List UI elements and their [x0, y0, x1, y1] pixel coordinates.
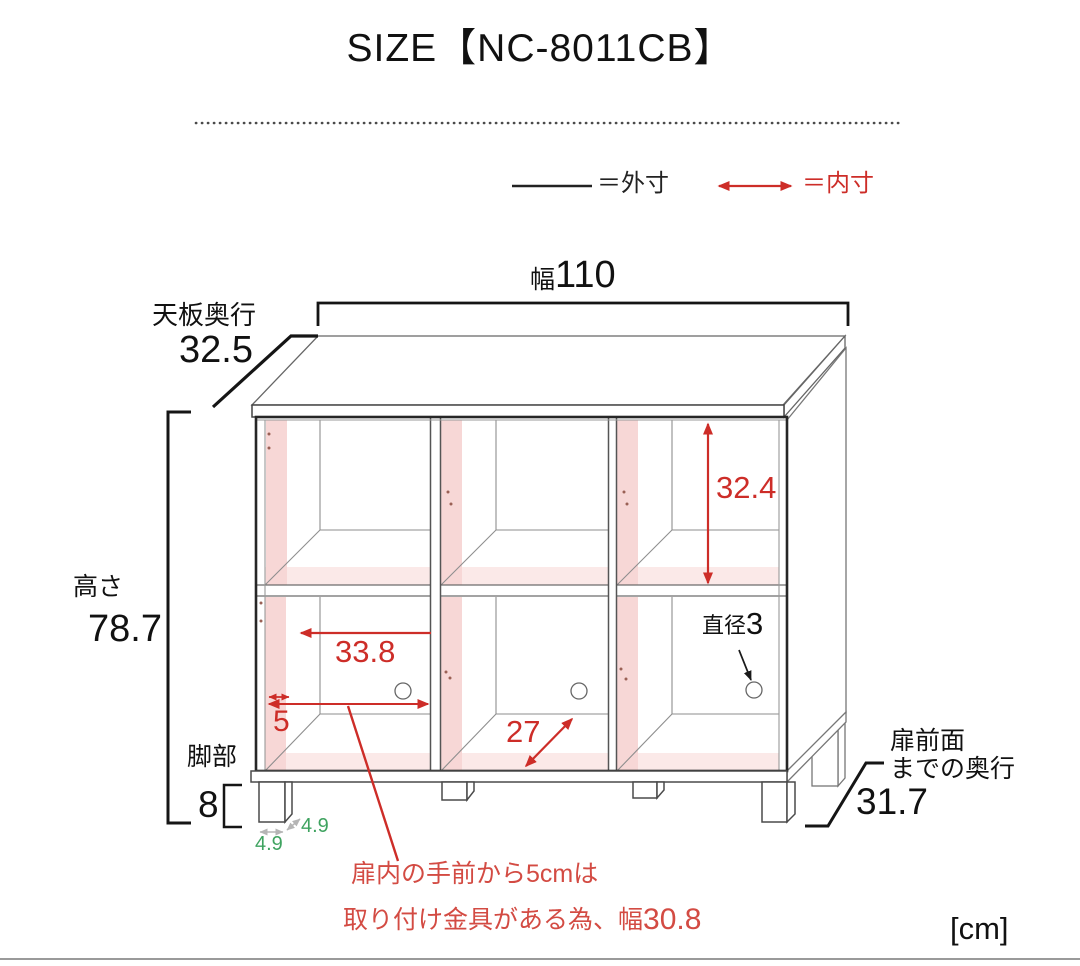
width-label: 幅 — [530, 267, 555, 296]
width-dimension: 幅 110 — [530, 256, 616, 296]
size-diagram-page: SIZE【NC-8011CB】 ＝外寸 ＝内寸 幅 110 天板奥行 32.5 … — [0, 0, 1080, 966]
cable-hole — [746, 682, 762, 698]
legend-outer-label: ＝外寸 — [597, 171, 669, 196]
front-depth-label-line1: 扉前面 — [890, 728, 965, 754]
front-left-leg — [259, 782, 285, 822]
note-leader-line — [348, 706, 398, 861]
note-line2-text: 取り付け金具がある為、幅 — [343, 907, 643, 935]
cable-hole — [395, 683, 411, 699]
hole-diameter-value: 3 — [746, 608, 763, 641]
middle-shelf — [256, 585, 787, 596]
inner-depth-value: 27 — [506, 716, 540, 749]
front-depth-value: 31.7 — [856, 783, 928, 822]
front-margin-value: 5 — [273, 706, 290, 738]
rear-middle-right-leg — [633, 782, 657, 798]
note-line2: 取り付け金具がある為、幅 30.8 — [343, 904, 701, 936]
compartment-top-left — [265, 420, 430, 585]
height-value: 78.7 — [88, 610, 162, 650]
front-right-leg — [762, 782, 787, 822]
top-depth-label: 天板奥行 — [152, 302, 256, 329]
leg-depth-value: 4.9 — [301, 816, 329, 837]
cabinet-top-panel — [252, 336, 845, 417]
page-title: SIZE【NC-8011CB】 — [0, 29, 1080, 70]
leg-width-value: 4.9 — [255, 834, 283, 855]
note-line2-value: 30.8 — [643, 904, 701, 936]
note-line1: 扉内の手前から5cmは — [351, 861, 598, 887]
height-label: 高さ — [73, 574, 123, 600]
cable-hole — [571, 683, 587, 699]
hole-diameter-arrow — [739, 650, 751, 680]
front-depth-label-line2: までの奥行 — [890, 756, 1015, 782]
width-value: 110 — [555, 256, 616, 296]
cabinet-right-side — [787, 348, 846, 786]
hole-diameter-dimension: 直径 3 — [702, 608, 763, 641]
base-rail — [251, 771, 787, 782]
top-depth-value: 32.5 — [179, 331, 253, 371]
compartment-top-middle — [441, 420, 608, 585]
compartment-bottom-left — [265, 597, 430, 771]
legend-inner-label: ＝内寸 — [802, 171, 874, 196]
legs — [259, 782, 795, 822]
rear-middle-left-leg — [442, 782, 467, 800]
legs-value: 8 — [198, 786, 219, 825]
width-bracket — [318, 303, 848, 326]
hole-diameter-label: 直径 — [702, 614, 746, 640]
leg-depth-arrow — [287, 819, 300, 830]
inner-width-value: 33.8 — [335, 636, 395, 669]
inner-height-value: 32.4 — [716, 472, 776, 505]
unit-label: [cm] — [950, 913, 1009, 946]
leg-bracket — [224, 785, 242, 827]
legs-label: 脚部 — [187, 744, 237, 770]
